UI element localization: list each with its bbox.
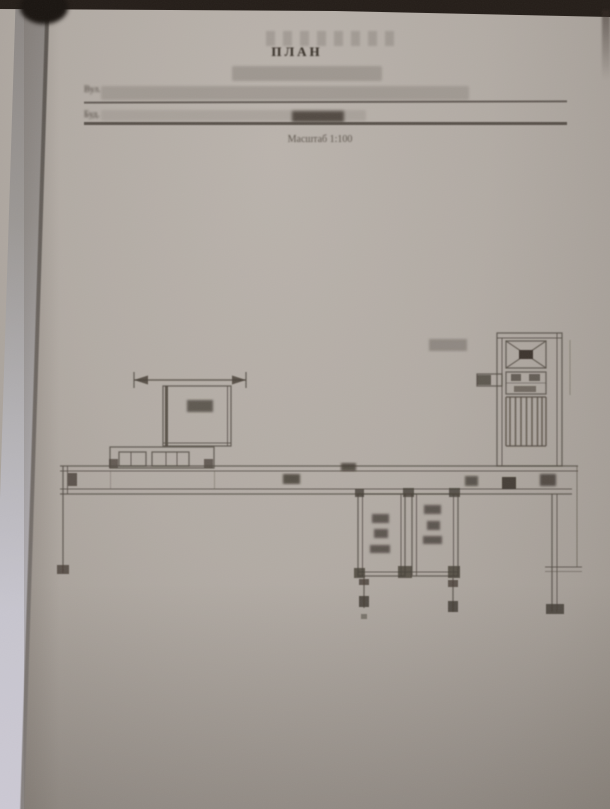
floor-plan-drawing bbox=[0, 0, 610, 809]
photo-grain-overlay bbox=[0, 0, 610, 809]
photographed-plan-page: ПЛАН Вул. Буд. Масштаб 1:100 bbox=[0, 0, 610, 809]
